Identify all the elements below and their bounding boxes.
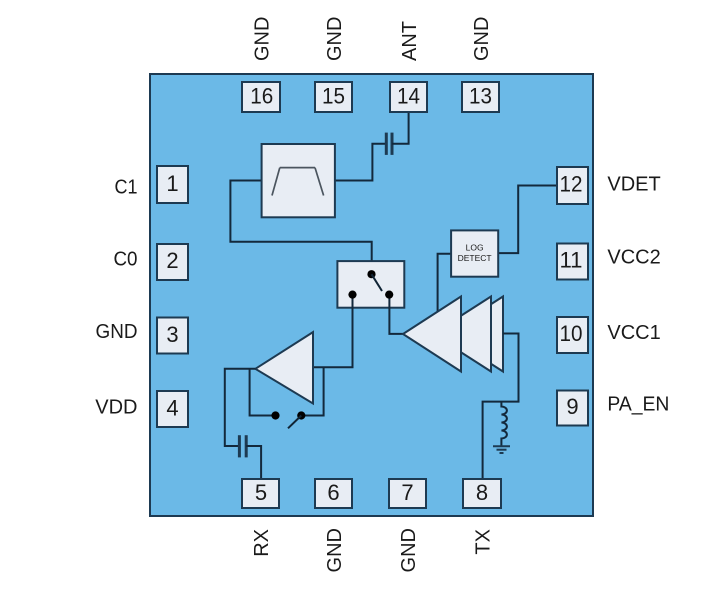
svg-text:VCC2: VCC2 (607, 247, 660, 269)
svg-text:7: 7 (401, 480, 413, 505)
svg-text:GND: GND (324, 17, 346, 61)
svg-text:16: 16 (250, 84, 273, 109)
svg-text:4: 4 (166, 396, 178, 421)
svg-text:DETECT: DETECT (458, 253, 492, 263)
svg-text:C1: C1 (115, 176, 138, 198)
svg-text:5: 5 (255, 480, 267, 505)
svg-text:2: 2 (166, 248, 178, 273)
svg-text:GND: GND (324, 528, 346, 572)
svg-text:15: 15 (322, 84, 345, 109)
svg-text:GND: GND (471, 17, 493, 61)
svg-text:GND: GND (96, 321, 138, 343)
svg-text:12: 12 (560, 172, 583, 197)
svg-text:ANT: ANT (399, 21, 421, 61)
svg-text:1: 1 (166, 171, 178, 196)
svg-text:VCC1: VCC1 (607, 322, 660, 344)
svg-text:TX: TX (472, 529, 494, 555)
svg-text:C0: C0 (114, 249, 138, 271)
svg-text:8: 8 (476, 480, 488, 505)
svg-text:11: 11 (560, 248, 583, 273)
svg-text:VDET: VDET (607, 173, 660, 195)
svg-text:6: 6 (327, 480, 339, 505)
svg-text:14: 14 (397, 84, 420, 109)
svg-text:PA_EN: PA_EN (607, 393, 669, 415)
svg-text:GND: GND (398, 528, 420, 572)
svg-text:LOG: LOG (466, 243, 484, 253)
svg-text:13: 13 (469, 84, 492, 109)
svg-text:10: 10 (560, 321, 583, 346)
svg-text:9: 9 (566, 394, 578, 419)
svg-text:VDD: VDD (95, 397, 137, 419)
svg-text:RX: RX (251, 529, 273, 557)
svg-text:GND: GND (252, 17, 274, 61)
svg-text:3: 3 (166, 322, 178, 347)
